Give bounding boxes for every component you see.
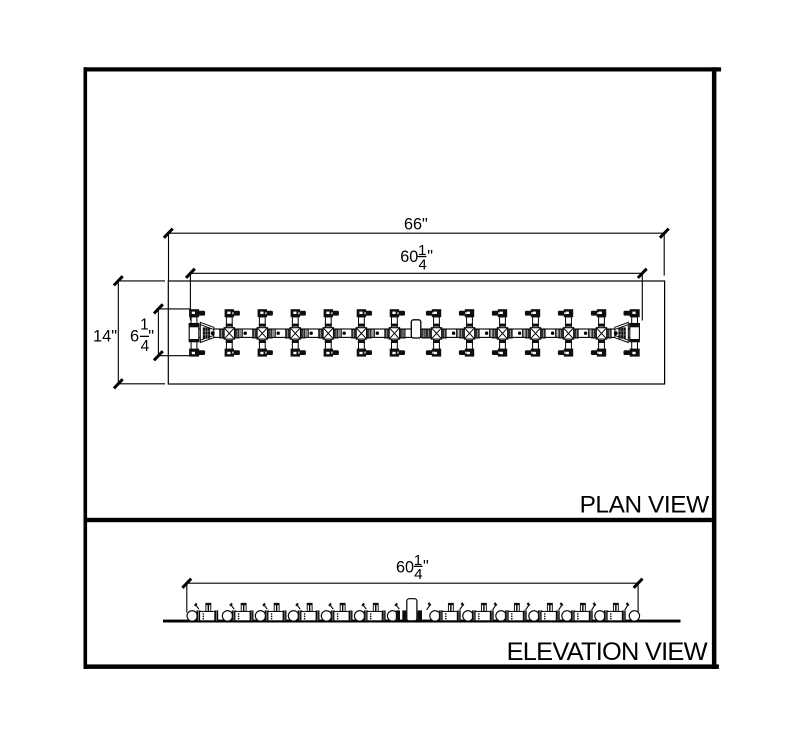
svg-text:": ": [427, 248, 433, 266]
svg-text:PLAN VIEW: PLAN VIEW: [580, 492, 710, 519]
svg-text:14": 14": [93, 328, 117, 346]
svg-text:": ": [148, 328, 154, 346]
svg-text:6: 6: [130, 328, 139, 346]
svg-text:4: 4: [418, 257, 426, 274]
svg-text:": ": [423, 558, 429, 576]
svg-text:66": 66": [404, 216, 428, 234]
svg-text:60: 60: [400, 248, 418, 266]
svg-text:60: 60: [396, 559, 414, 577]
svg-text:4: 4: [414, 566, 422, 583]
svg-text:ELEVATION VIEW: ELEVATION VIEW: [507, 638, 708, 666]
